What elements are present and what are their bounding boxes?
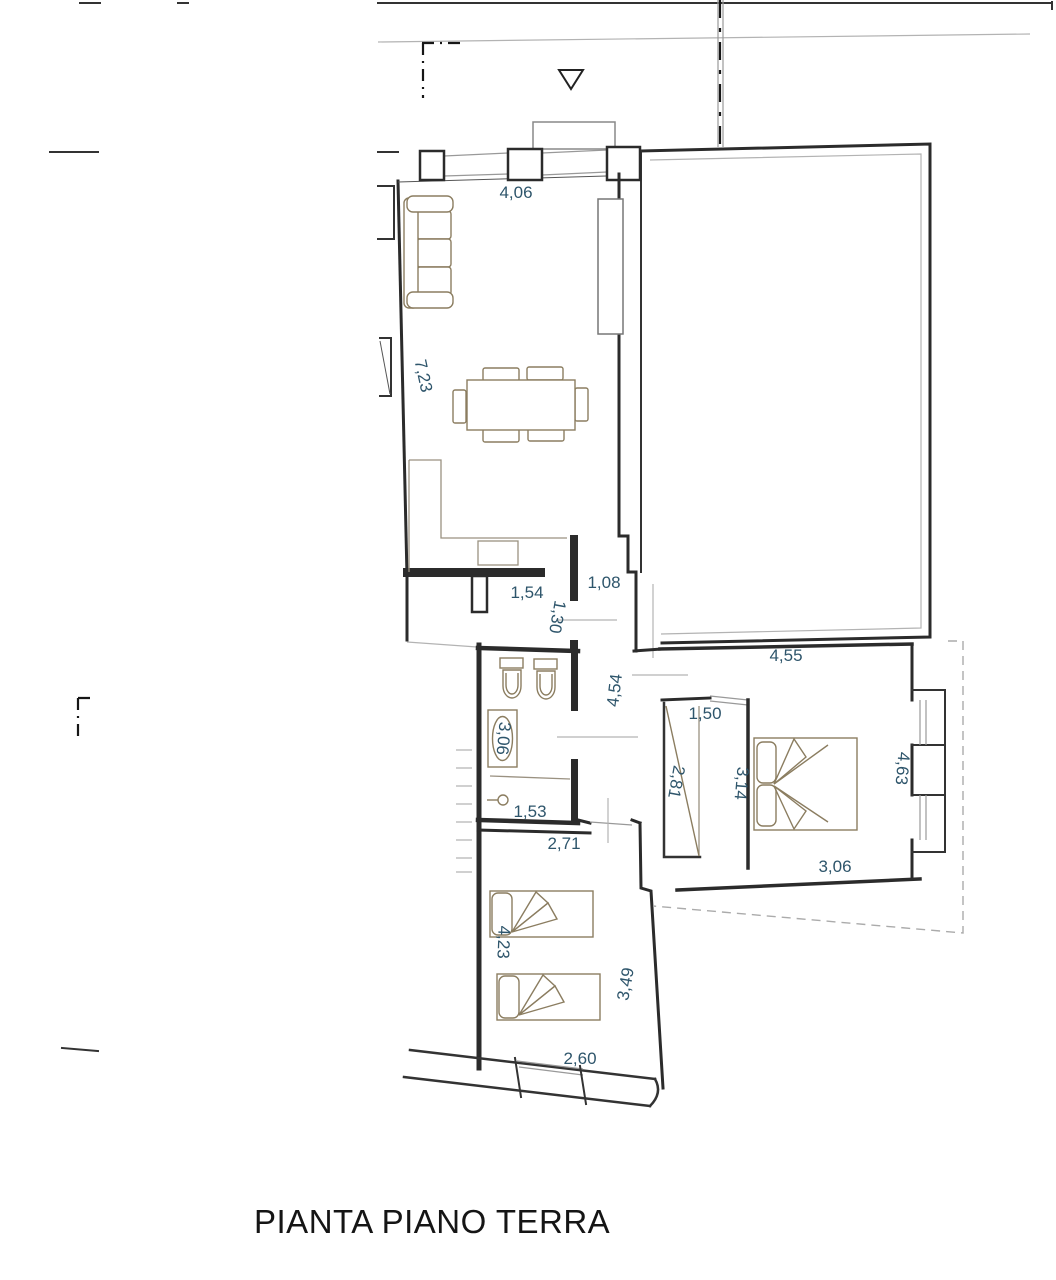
- floor-plan-drawing: 4,06 7,23 1,54 1,08 1,30 4,54 3,06 1,53 …: [0, 0, 1056, 1280]
- bidet: [534, 659, 557, 699]
- dim-bath-width: 1,53: [513, 802, 546, 821]
- toilet: [500, 658, 523, 698]
- floor-plan-sheet: 4,06 7,23 1,54 1,08 1,30 4,54 3,06 1,53 …: [0, 0, 1056, 1280]
- dim-bedroom-height: 4,63: [892, 751, 914, 786]
- sofa: [404, 196, 453, 308]
- corridor: [578, 798, 663, 1088]
- dim-door-width: 1,30: [545, 599, 569, 635]
- kitchen-counter: [409, 460, 567, 572]
- dim-living-width: 4,06: [499, 183, 532, 202]
- large-room: [641, 144, 930, 643]
- dim-twin-left: 4,23: [493, 925, 513, 959]
- single-bed-2: [497, 974, 600, 1020]
- terrace: [378, 0, 1030, 149]
- dim-twin-right: 3,49: [613, 966, 637, 1002]
- exterior-steps: [456, 750, 472, 872]
- dim-corridor-length: 4,54: [603, 673, 626, 708]
- dim-bath-length: 3,06: [493, 721, 515, 756]
- dim-bedroom-bottom: 3,06: [818, 857, 851, 876]
- dim-partition: 3,14: [731, 766, 753, 801]
- dimension-labels: 4,06 7,23 1,54 1,08 1,30 4,54 3,06 1,53 …: [411, 183, 914, 1068]
- plan-title: PIANTA PIANO TERRA: [254, 1203, 610, 1241]
- dining-table: [453, 367, 588, 442]
- entrance-step: [533, 122, 615, 149]
- hall-passage: [556, 535, 653, 658]
- dim-twin-bottom: 2,60: [563, 1049, 596, 1068]
- twin-bedroom-window: [404, 1050, 658, 1106]
- sink-tap-icon: [487, 795, 508, 805]
- window-shutter-icons: [378, 186, 394, 396]
- cabinet: [598, 199, 623, 334]
- dim-twin-top: 2,71: [547, 834, 580, 853]
- dim-closet-width: 1,50: [688, 704, 721, 723]
- dim-hall-width: 1,54: [510, 583, 543, 602]
- dim-bedroom-width: 4,55: [769, 646, 802, 665]
- entrance-arrow-icon: [559, 70, 583, 89]
- double-bed: [754, 738, 857, 830]
- dim-living-height: 7,23: [411, 358, 436, 394]
- dim-corridor-width: 1,08: [587, 573, 620, 592]
